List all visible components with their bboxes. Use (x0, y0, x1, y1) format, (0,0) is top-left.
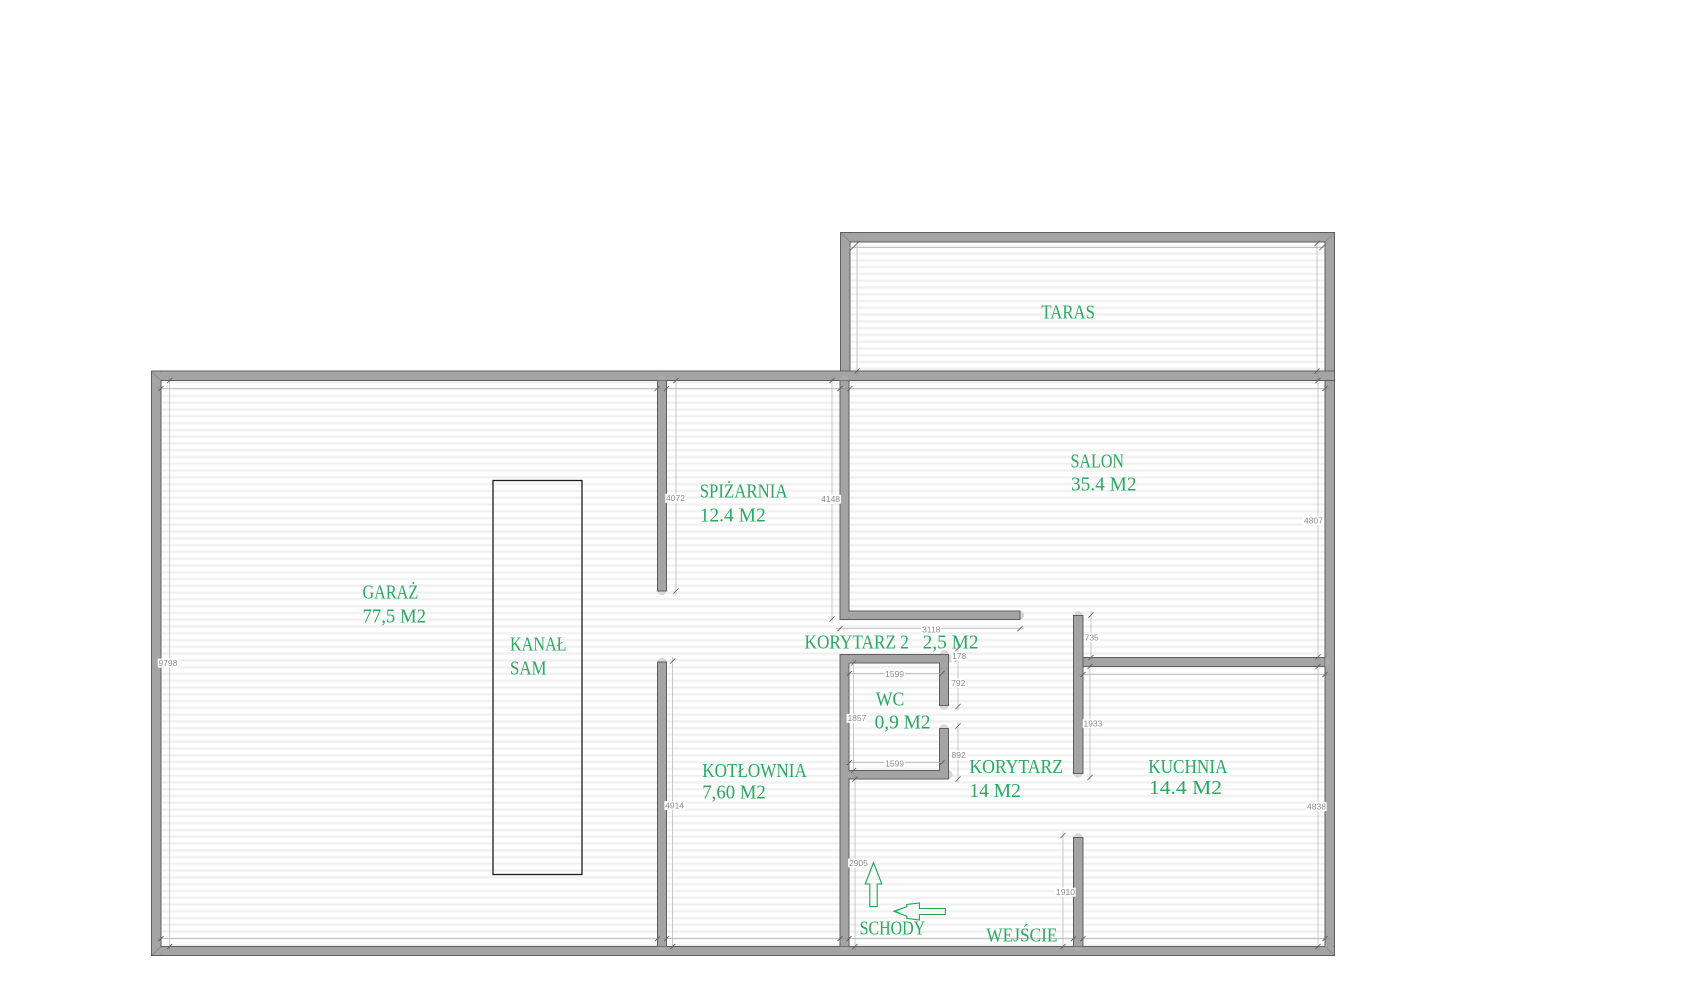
svg-text:4072: 4072 (666, 493, 685, 503)
svg-text:KUCHNIA: KUCHNIA (1148, 756, 1228, 778)
svg-text:792: 792 (951, 678, 965, 688)
svg-text:7,60 M2: 7,60 M2 (702, 782, 766, 804)
svg-text:4914: 4914 (665, 800, 684, 810)
svg-text:2,5 M2: 2,5 M2 (923, 631, 979, 653)
svg-text:892: 892 (952, 750, 966, 760)
svg-text:KANAŁ: KANAŁ (510, 634, 567, 656)
svg-text:KORYTARZ 2: KORYTARZ 2 (805, 631, 909, 653)
svg-text:4838: 4838 (1307, 802, 1326, 812)
svg-text:WEJŚCIE: WEJŚCIE (986, 923, 1057, 947)
svg-text:TARAS: TARAS (1041, 302, 1095, 324)
svg-text:14 M2: 14 M2 (969, 780, 1021, 802)
svg-text:1599: 1599 (885, 669, 904, 679)
svg-text:KOTŁOWNIA: KOTŁOWNIA (702, 760, 807, 782)
svg-text:9798: 9798 (158, 658, 177, 668)
svg-text:14.4 M2: 14.4 M2 (1149, 777, 1222, 799)
svg-text:35.4 M2: 35.4 M2 (1071, 474, 1137, 496)
svg-text:77,5 M2: 77,5 M2 (363, 606, 427, 628)
svg-text:SAM: SAM (510, 658, 547, 680)
svg-text:1599: 1599 (885, 759, 904, 769)
svg-text:1933: 1933 (1083, 719, 1102, 729)
svg-text:0,9 M2: 0,9 M2 (875, 712, 931, 734)
svg-text:2905: 2905 (849, 858, 868, 868)
svg-text:SCHODY: SCHODY (860, 918, 926, 940)
svg-text:1857: 1857 (847, 713, 866, 723)
svg-text:1910: 1910 (1056, 887, 1075, 897)
svg-text:SPIŻARNIA: SPIŻARNIA (700, 480, 788, 503)
svg-text:735: 735 (1085, 632, 1099, 642)
svg-text:WC: WC (876, 688, 905, 710)
svg-text:4148: 4148 (821, 494, 840, 504)
svg-text:GARAŻ: GARAŻ (363, 580, 419, 603)
svg-text:4807: 4807 (1304, 516, 1323, 526)
svg-text:SALON: SALON (1071, 450, 1125, 472)
svg-text:12.4 M2: 12.4 M2 (700, 505, 766, 527)
svg-text:KORYTARZ: KORYTARZ (969, 756, 1063, 778)
